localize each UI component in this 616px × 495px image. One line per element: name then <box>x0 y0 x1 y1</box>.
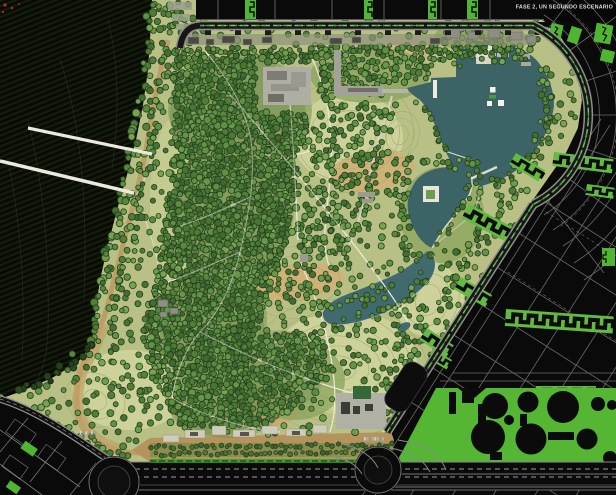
svg-text:FASE 2, UN SEGUNDO ESCENARIO: FASE 2, UN SEGUNDO ESCENARIO <box>516 5 613 11</box>
